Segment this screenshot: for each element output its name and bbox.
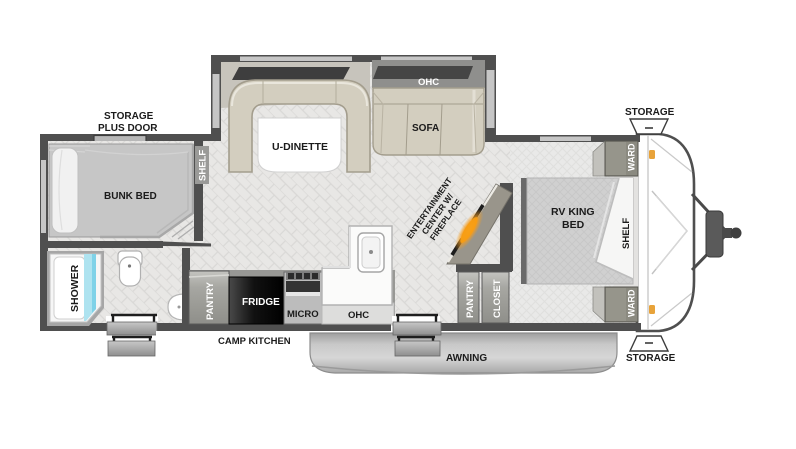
svg-text:BUNK BED: BUNK BED bbox=[104, 191, 157, 202]
svg-text:AWNING: AWNING bbox=[446, 353, 487, 364]
svg-text:BED: BED bbox=[562, 219, 585, 231]
svg-text:STORAGE: STORAGE bbox=[104, 111, 154, 122]
svg-text:OHC: OHC bbox=[418, 77, 439, 88]
svg-text:U-DINETTE: U-DINETTE bbox=[272, 141, 328, 153]
svg-text:CLOSET: CLOSET bbox=[492, 279, 503, 318]
svg-text:STORAGE: STORAGE bbox=[625, 107, 675, 118]
svg-text:WARD: WARD bbox=[627, 289, 637, 317]
svg-text:WARD: WARD bbox=[627, 143, 637, 171]
svg-text:SHOWER: SHOWER bbox=[69, 264, 81, 312]
svg-text:SHELF: SHELF bbox=[621, 218, 632, 249]
svg-text:RV KING: RV KING bbox=[551, 206, 595, 218]
svg-text:PANTRY: PANTRY bbox=[465, 279, 476, 318]
svg-text:OHC: OHC bbox=[348, 310, 369, 321]
svg-text:SHELF: SHELF bbox=[198, 150, 209, 181]
svg-text:STORAGE: STORAGE bbox=[626, 353, 676, 364]
svg-text:SOFA: SOFA bbox=[412, 123, 439, 134]
svg-text:CAMP KITCHEN: CAMP KITCHEN bbox=[218, 336, 291, 347]
svg-text:MICRO: MICRO bbox=[287, 309, 319, 320]
svg-text:PANTRY: PANTRY bbox=[205, 281, 216, 320]
svg-text:PLUS DOOR: PLUS DOOR bbox=[98, 123, 158, 134]
svg-text:FRIDGE: FRIDGE bbox=[242, 297, 280, 308]
